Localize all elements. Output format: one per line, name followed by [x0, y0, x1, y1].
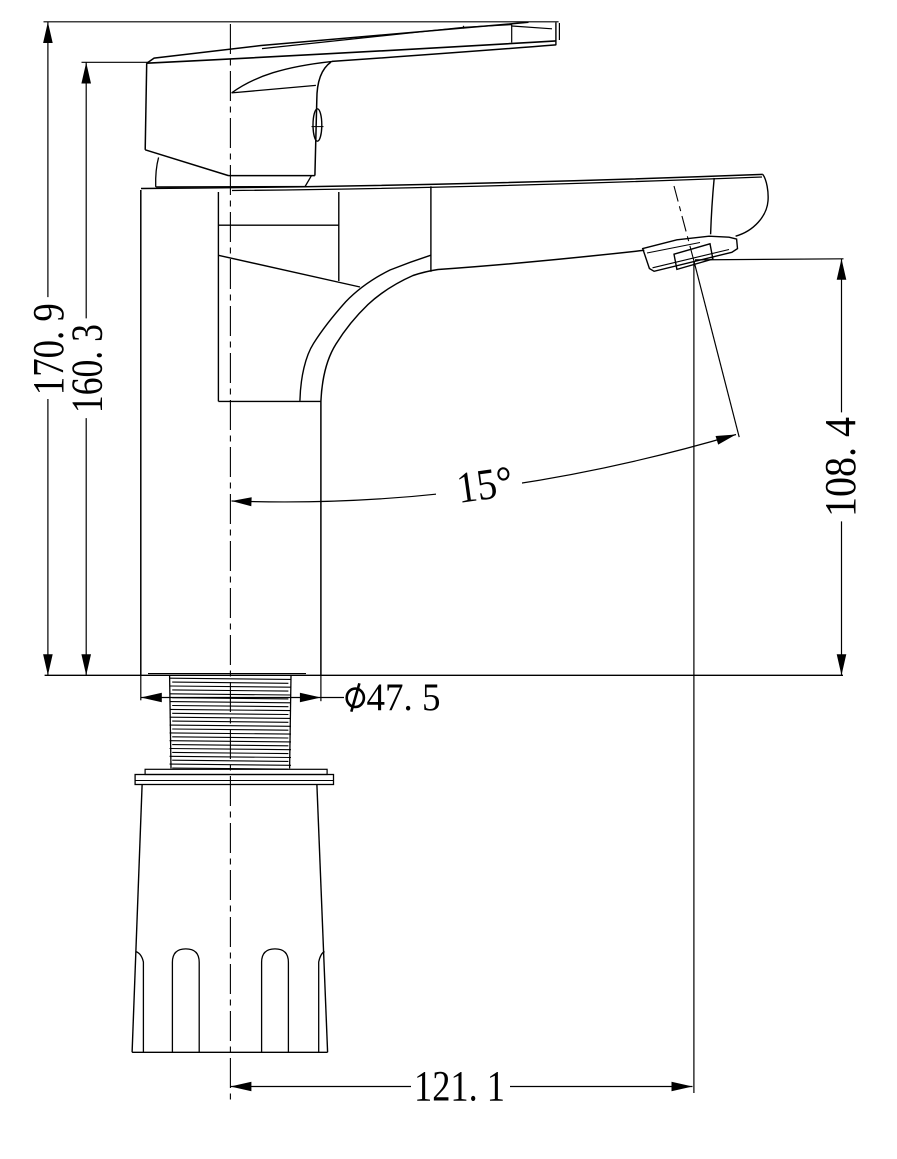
svg-text:160. 3: 160. 3 — [62, 324, 111, 413]
svg-text:108. 4: 108. 4 — [816, 417, 865, 517]
svg-text:47. 5: 47. 5 — [367, 676, 441, 719]
svg-text:121. 1: 121. 1 — [414, 1064, 505, 1111]
svg-text:15°: 15° — [454, 457, 516, 513]
